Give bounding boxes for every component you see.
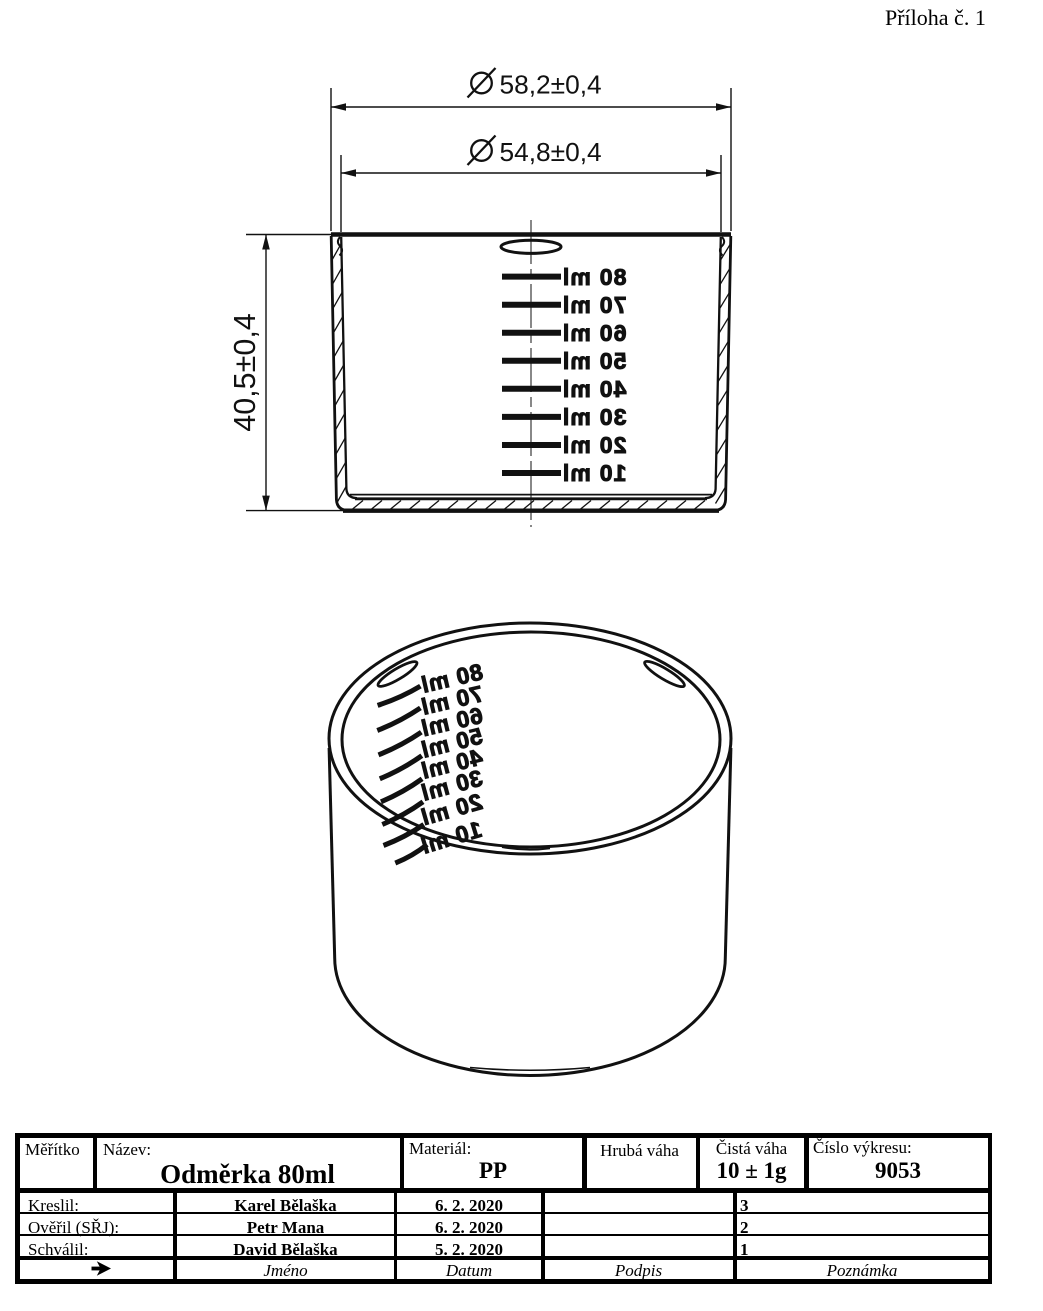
svg-text:54,8±0,4: 54,8±0,4: [500, 137, 602, 167]
svg-text:40 ml: 40 ml: [562, 376, 627, 402]
svg-text:20 ml: 20 ml: [562, 432, 627, 458]
svg-text:30 ml: 30 ml: [562, 404, 627, 430]
svg-text:10 ml: 10 ml: [562, 460, 627, 486]
svg-text:58,2±0,4: 58,2±0,4: [500, 70, 602, 100]
svg-text:60 ml: 60 ml: [562, 320, 627, 346]
svg-text:70 ml: 70 ml: [562, 292, 627, 318]
svg-text:80 ml: 80 ml: [562, 264, 627, 290]
svg-text:40,5±0,4: 40,5±0,4: [228, 313, 262, 432]
svg-text:50 ml: 50 ml: [562, 348, 627, 374]
